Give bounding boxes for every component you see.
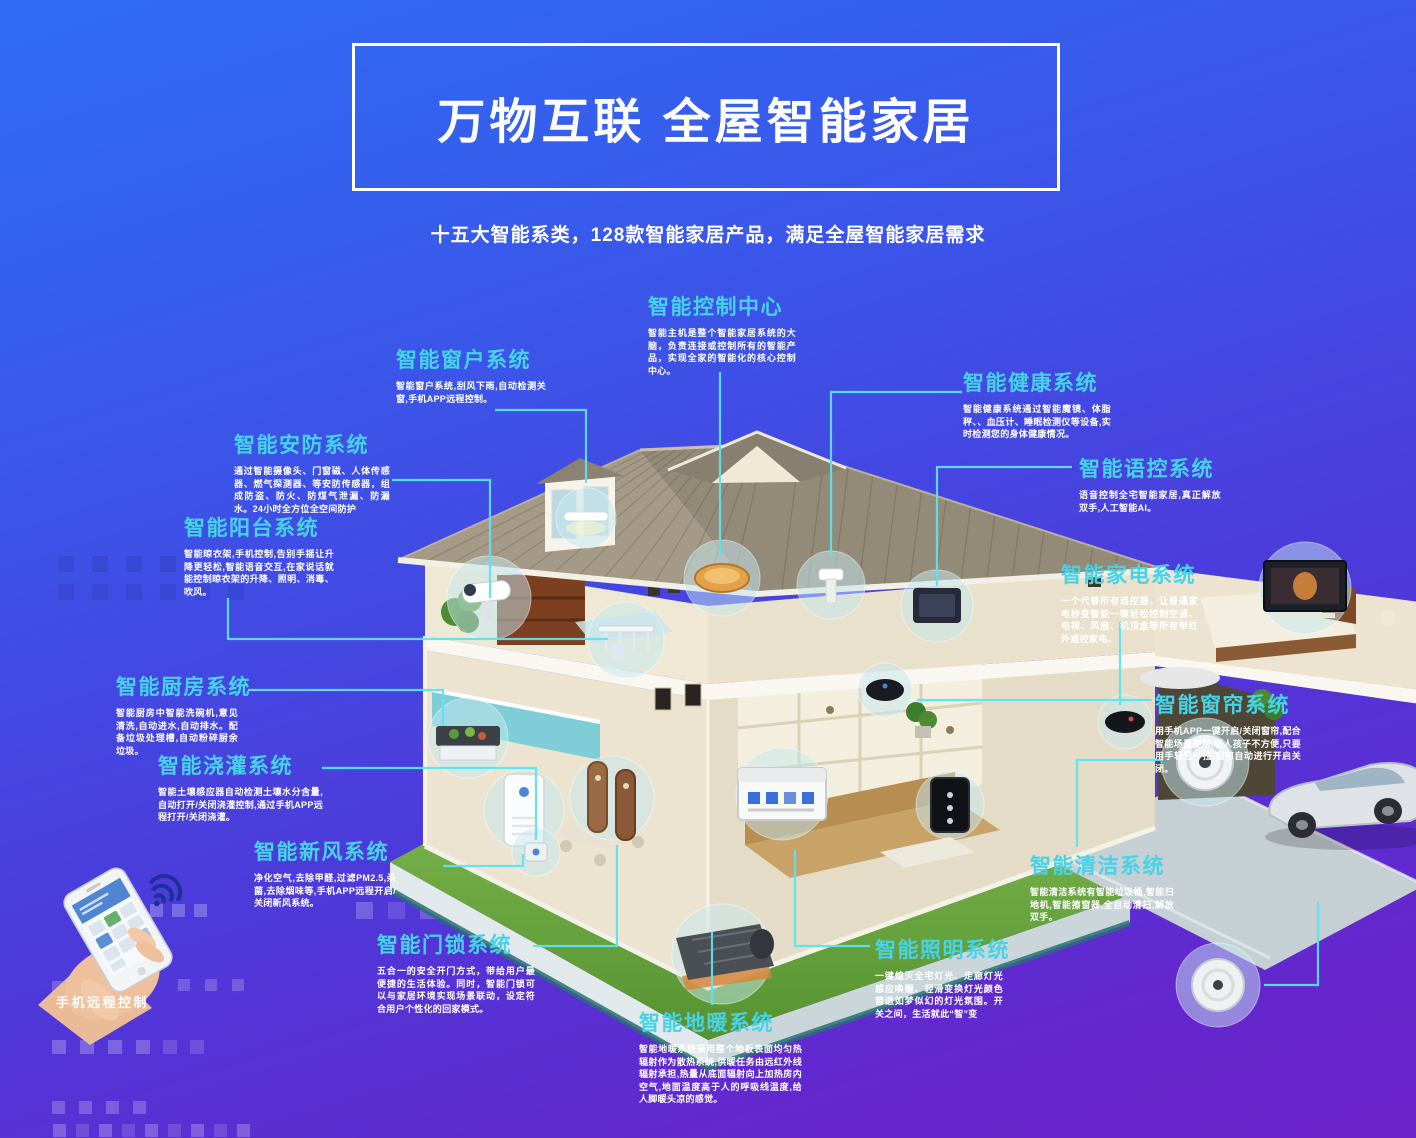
system-desc: 语音控制全宅智能家居,真正解放双手,人工智能AI。	[1079, 489, 1221, 514]
bathroom-sink-icon	[797, 551, 865, 619]
system-title: 智能窗户系统	[396, 344, 546, 374]
irrigation-controller-icon	[512, 828, 560, 876]
system-title: 智能安防系统	[234, 429, 390, 459]
control-box-icon	[736, 748, 828, 840]
system-desc: 智能窗户系统,刮风下雨,自动检测关窗,手机APP远程控制。	[396, 380, 546, 405]
system-label-curtain: 智能窗帘系统 用手机APP一键开启/关闭窗帘,配合智能场景使用,老人孩子不方便,…	[1155, 689, 1301, 775]
system-label-cleaning: 智能清洁系统 智能清洁系统有智能垃圾桶,智能扫地机,智能擦窗器,全自动清扫,解放…	[1030, 850, 1174, 924]
voice-hub-icon	[858, 663, 912, 717]
smart-light-icon	[556, 488, 616, 548]
bookshelf	[497, 575, 585, 645]
connector-fresh-air	[443, 854, 523, 866]
bedroom-rug	[1140, 667, 1220, 689]
lawn-robot-icon	[1176, 943, 1260, 1027]
connector-cleaning	[1077, 760, 1163, 847]
air-purifier-icon	[484, 770, 564, 850]
smartphone	[60, 864, 175, 995]
connector-lighting	[795, 850, 870, 946]
wall-switch-icon	[916, 771, 984, 839]
wifi-icon	[142, 870, 186, 914]
ceiling-lamp-icon	[684, 540, 760, 616]
system-label-control-center: 智能控制中心 智能主机是整个智能家居系统的大脑，负责连接或控制所有的智能产品，实…	[648, 291, 796, 377]
connector-door-lock	[533, 845, 617, 946]
system-title: 智能照明系统	[875, 934, 1010, 964]
kitchen-cabinets	[432, 690, 600, 760]
system-title: 智能阳台系统	[184, 512, 334, 542]
connector-balcony	[228, 598, 608, 639]
system-title: 智能家电系统	[1061, 559, 1198, 589]
system-desc: 智能健康系统通过智能魔镜、体脂秤、、血压计、睡眠检测仪等设备,实时检测您的身体健…	[963, 403, 1111, 441]
system-desc: 智能主机是整个智能家居系统的大脑，负责连接或控制所有的智能产品，实现全家的智能化…	[648, 327, 796, 377]
door-lock-icon	[570, 756, 654, 840]
system-label-security: 智能安防系统 通过智能摄像头、门窗磁、人体传感器、燃气探测器、等安防传感器，组成…	[234, 429, 390, 515]
shelving-unit	[738, 615, 982, 815]
roof-peak	[668, 432, 846, 483]
system-label-fresh-air: 智能新风系统 净化空气,去除甲醛,过滤PM2.5,杀菌,去除烟味等,手机APP远…	[254, 836, 396, 910]
sofa	[745, 772, 955, 845]
ir-remote-hub-icon	[1098, 695, 1152, 749]
roof-left	[398, 450, 756, 594]
connector-lawn-robot	[1264, 902, 1318, 985]
connector-kitchen	[248, 690, 443, 726]
system-title: 智能窗帘系统	[1155, 689, 1301, 719]
system-desc: 用手机APP一键开启/关闭窗帘,配合智能场景使用,老人孩子不方便,只要用手轻轻一…	[1155, 725, 1301, 775]
roof-texture	[424, 444, 1142, 592]
smart-mirror-icon	[901, 570, 973, 642]
system-label-kitchen: 智能厨房系统 智能厨房中智能洗碗机,意见清洗,自动进水,自动排水。配备垃圾处理槽…	[116, 671, 251, 757]
system-title: 智能地暖系统	[639, 1007, 802, 1037]
car	[1265, 763, 1416, 850]
connector-health	[831, 392, 962, 556]
system-title: 智能清洁系统	[1030, 850, 1174, 880]
system-title: 智能厨房系统	[116, 671, 251, 701]
system-title: 智能语控系统	[1079, 453, 1221, 483]
phone-remote-illustration	[38, 864, 186, 1045]
system-label-irrigation: 智能浇灌系统 智能土壤感应器自动检测土壤水分含量,自动打开/关闭浇灌控制,通过手…	[158, 750, 323, 824]
connector-security	[392, 480, 490, 598]
system-desc: 智能晾衣架,手机控制,告别手摇让升降更轻松,智能语音交互,在家说话就能控制晾衣架…	[184, 548, 334, 598]
system-desc: 五合一的安全开门方式，带给用户最便捷的生活体验。同时，智能门锁可以与家居环境实现…	[377, 965, 535, 1015]
connector-window	[495, 410, 586, 483]
connector-voice	[937, 467, 1072, 586]
connector-irrigation	[322, 768, 536, 840]
dishwasher-icon	[428, 698, 508, 778]
system-label-lighting: 智能照明系统 一键熄灭全宅灯光、走廊灯光感应唤醒、轻滑变换灯光颜色营造如梦似幻的…	[875, 934, 1010, 1020]
phone-caption: 手机远程控制	[56, 992, 149, 1011]
floor-heating-icon	[672, 904, 774, 1004]
system-label-balcony: 智能阳台系统 智能晾衣架,手机控制,告别手摇让升降更轻松,智能语音交互,在家说话…	[184, 512, 334, 598]
clothes-rack-icon	[588, 602, 664, 678]
title-box: 万物互联 全屋智能家居	[352, 43, 1060, 191]
page-subtitle: 十五大智能系类，128款智能家居产品，满足全屋智能家居需求	[0, 220, 1416, 247]
system-label-window: 智能窗户系统 智能窗户系统,刮风下雨,自动检测关窗,手机APP远程控制。	[396, 344, 546, 405]
system-desc: 净化空气,去除甲醛,过滤PM2.5,杀菌,去除烟味等,手机APP远程开启/关闭新…	[254, 872, 396, 910]
page-title: 万物互联 全屋智能家居	[437, 82, 974, 152]
system-label-door-lock: 智能门锁系统 五合一的安全开门方式，带给用户最便捷的生活体验。同时，智能门锁可以…	[377, 929, 535, 1015]
system-label-floor-heating: 智能地暖系统 智能地暖系统采用整个地板表面均匀热辐射作为散热系统,供暖任务由远红…	[639, 1007, 802, 1106]
system-desc: 智能地暖系统采用整个地板表面均匀热辐射作为散热系统,供暖任务由远红外线辐射承担,…	[639, 1043, 802, 1106]
dormer	[545, 472, 615, 552]
tv-icon	[1259, 542, 1351, 634]
system-desc: 智能土壤感应器自动检测土壤水分含量,自动打开/关闭浇灌控制,通过手机APP远程打…	[158, 786, 323, 824]
system-label-health: 智能健康系统 智能健康系统通过智能魔镜、体脂秤、、血压计、睡眠检测仪等设备,实时…	[963, 367, 1111, 441]
system-title: 智能新风系统	[254, 836, 396, 866]
system-title: 智能健康系统	[963, 367, 1111, 397]
system-desc: 智能清洁系统有智能垃圾桶,智能扫地机,智能擦窗器,全自动清扫,解放双手。	[1030, 886, 1174, 924]
system-title: 智能控制中心	[648, 291, 796, 321]
wall-upper-left	[425, 560, 708, 684]
security-camera-icon	[447, 556, 531, 640]
system-title: 智能门锁系统	[377, 929, 535, 959]
system-desc: 通过智能摄像头、门窗磁、人体传感器、燃气探测器、等安防传感器，组成防盗、防火、防…	[234, 465, 390, 515]
system-title: 智能浇灌系统	[158, 750, 323, 780]
system-desc: 一个代替所有遥控器，让普通家电秒变智能一键轻松控制空调、电视、风扇、机顶盒等所有…	[1061, 595, 1198, 645]
system-label-appliance: 智能家电系统 一个代替所有遥控器，让普通家电秒变智能一键轻松控制空调、电视、风扇…	[1061, 559, 1198, 645]
bed	[1200, 586, 1356, 650]
system-label-voice: 智能语控系统 语音控制全宅智能家居,真正解放双手,人工智能AI。	[1079, 453, 1221, 514]
system-desc: 一键熄灭全宅灯光、走廊灯光感应唤醒、轻滑变换灯光颜色营造如梦似幻的灯光氛围。开关…	[875, 970, 1003, 1020]
